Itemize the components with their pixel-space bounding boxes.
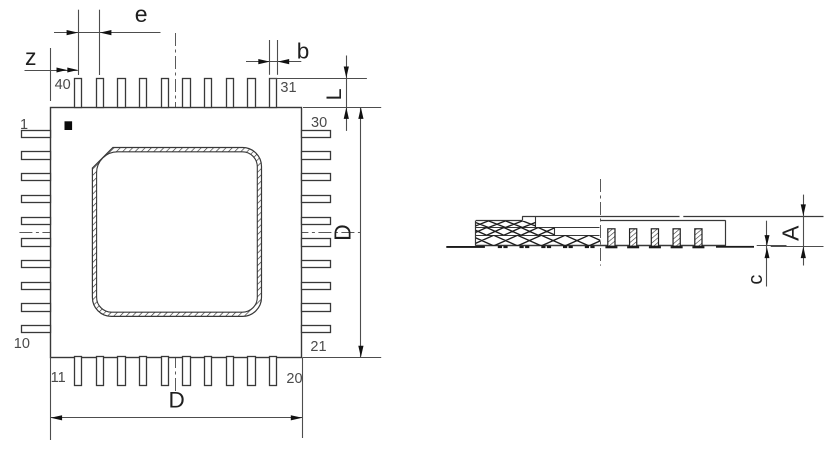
svg-text:A: A [777, 225, 803, 241]
svg-text:11: 11 [51, 370, 66, 386]
svg-text:D: D [169, 388, 185, 413]
svg-text:L: L [322, 88, 346, 100]
svg-text:21: 21 [310, 339, 326, 355]
svg-text:D: D [329, 224, 355, 241]
svg-text:10: 10 [14, 336, 30, 352]
svg-text:c: c [745, 275, 767, 285]
svg-text:40: 40 [55, 77, 71, 93]
svg-text:e: e [135, 1, 148, 27]
svg-text:1: 1 [20, 117, 28, 133]
svg-text:b: b [297, 39, 310, 64]
svg-text:31: 31 [280, 80, 296, 96]
svg-text:20: 20 [286, 371, 302, 387]
svg-text:z: z [25, 44, 37, 70]
svg-text:30: 30 [311, 115, 327, 131]
